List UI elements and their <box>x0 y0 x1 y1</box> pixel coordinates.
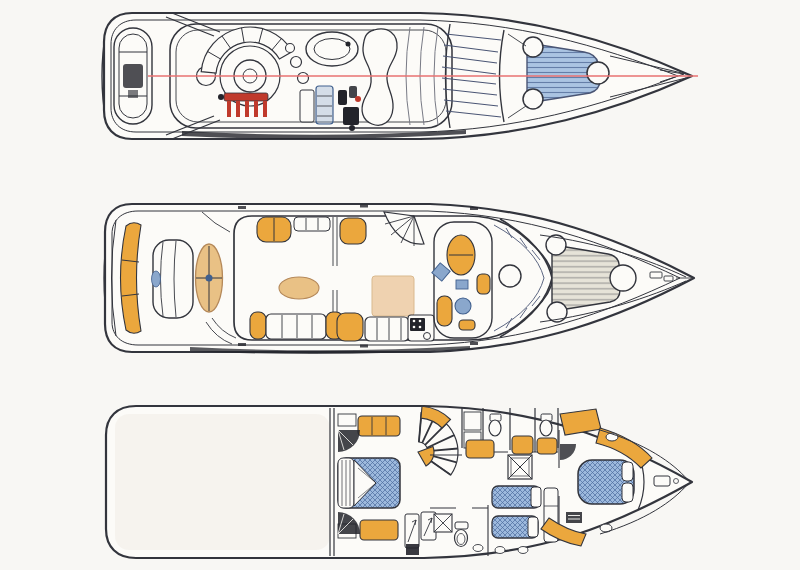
step-grate <box>566 512 582 523</box>
toilet <box>455 530 468 547</box>
saloon-corner-settee-bottom <box>337 313 363 341</box>
shower-boxes <box>508 455 532 479</box>
vip-cabinet <box>560 409 601 435</box>
oval-spa-lounger <box>306 32 358 66</box>
bow-stowage-hatch <box>654 476 670 486</box>
stool <box>455 298 471 314</box>
main-deck-plan <box>104 204 694 354</box>
saloon-sofa <box>365 317 409 341</box>
cockpit-table <box>279 277 319 299</box>
engine-hatch-bench <box>152 240 194 318</box>
dresser-bottom <box>360 520 398 540</box>
flybridge-deck-plan <box>102 13 698 139</box>
deck-plans-canvas <box>0 0 800 570</box>
dresser-top <box>358 416 400 436</box>
sun-lounger-oval <box>196 244 223 312</box>
yacht-deck-plans <box>0 0 800 570</box>
console-module <box>456 280 468 289</box>
engine-room <box>115 414 330 550</box>
saloon-rug <box>372 276 414 316</box>
stern-tender <box>114 28 152 124</box>
lower-deck-plan <box>106 406 692 558</box>
saloon-corner-settee-top <box>340 218 366 244</box>
wet-bar-cabinet <box>300 86 333 124</box>
galley-stove <box>408 315 434 341</box>
